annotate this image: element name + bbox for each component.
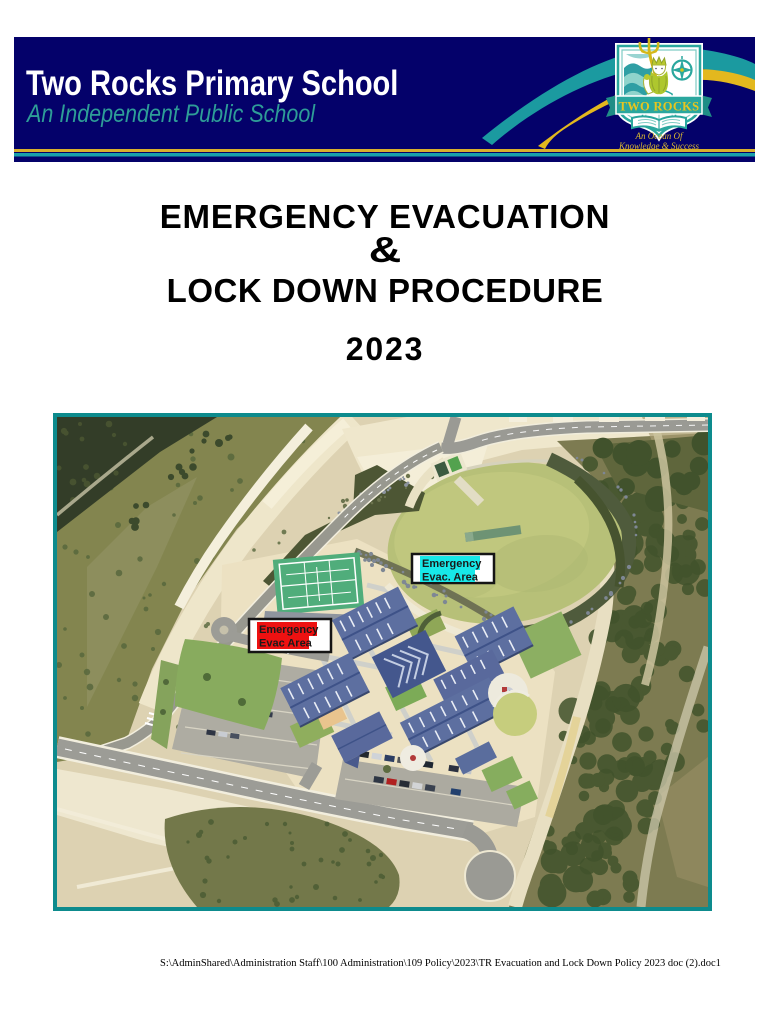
svg-text:Emergency: Emergency — [259, 624, 319, 636]
svg-text:Evac. Area: Evac. Area — [422, 572, 479, 584]
svg-text:TWO ROCKS: TWO ROCKS — [619, 100, 700, 114]
svg-text:Emergency: Emergency — [422, 558, 482, 570]
svg-text:Evac Area: Evac Area — [259, 638, 313, 650]
